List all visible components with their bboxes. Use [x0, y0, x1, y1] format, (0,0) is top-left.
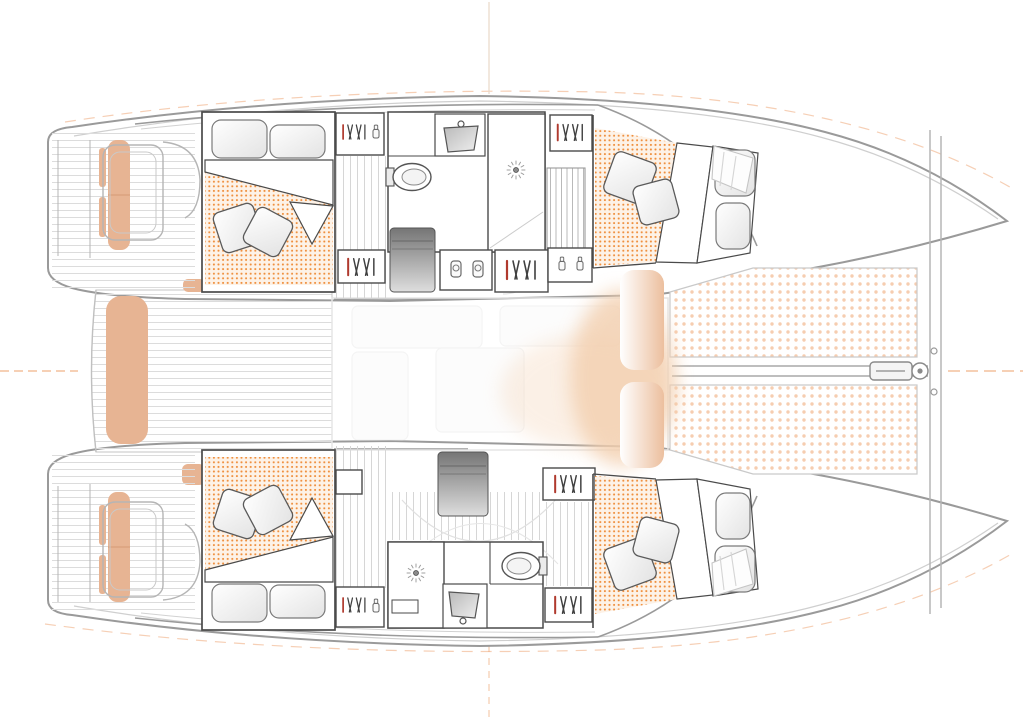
companionway-stairs-port — [547, 168, 585, 252]
shower-stall — [488, 114, 545, 252]
shower-stall — [388, 542, 444, 628]
stowage-locker — [336, 470, 362, 494]
forward-seat-starboard — [620, 382, 664, 468]
cockpit-aft-bench — [106, 296, 148, 444]
floorplan-canvas — [0, 0, 1024, 724]
wardrobe — [338, 250, 385, 283]
sink-basin — [444, 126, 478, 152]
trampoline-port — [670, 268, 917, 357]
trampoline-starboard — [670, 385, 917, 474]
pillow — [212, 584, 267, 622]
faucet-icon — [460, 618, 466, 624]
toilet-icon — [386, 164, 431, 191]
jar-icon — [373, 125, 379, 138]
glass-icon — [473, 261, 483, 277]
forward-seat-port — [620, 270, 664, 370]
toilet-icon — [502, 553, 547, 580]
cabin-starboard-aft — [202, 450, 335, 630]
wardrobe — [545, 588, 592, 622]
head-starboard — [388, 542, 547, 628]
pillow — [716, 493, 750, 539]
pillow — [270, 125, 325, 158]
corridor-planks-starboard — [336, 446, 388, 588]
stowage-locker — [440, 250, 492, 290]
wardrobe — [543, 468, 595, 500]
glass-icon — [451, 261, 461, 277]
sink-basin — [449, 592, 479, 618]
jar-icon — [373, 599, 379, 612]
pillow — [270, 585, 325, 618]
galley-module — [390, 228, 435, 292]
wardrobe — [495, 250, 548, 292]
cabin-port-aft — [202, 112, 335, 292]
jar-icon — [559, 257, 565, 270]
transom-starboard — [52, 450, 203, 610]
bowsprit — [672, 362, 928, 380]
companionway-module — [438, 452, 488, 516]
wardrobe — [550, 115, 592, 151]
pillow — [716, 203, 750, 249]
jar-icon — [577, 257, 583, 270]
pillow — [212, 120, 267, 158]
transom-port — [52, 132, 203, 292]
stowage-locker — [548, 248, 592, 282]
faucet-icon — [458, 121, 464, 127]
